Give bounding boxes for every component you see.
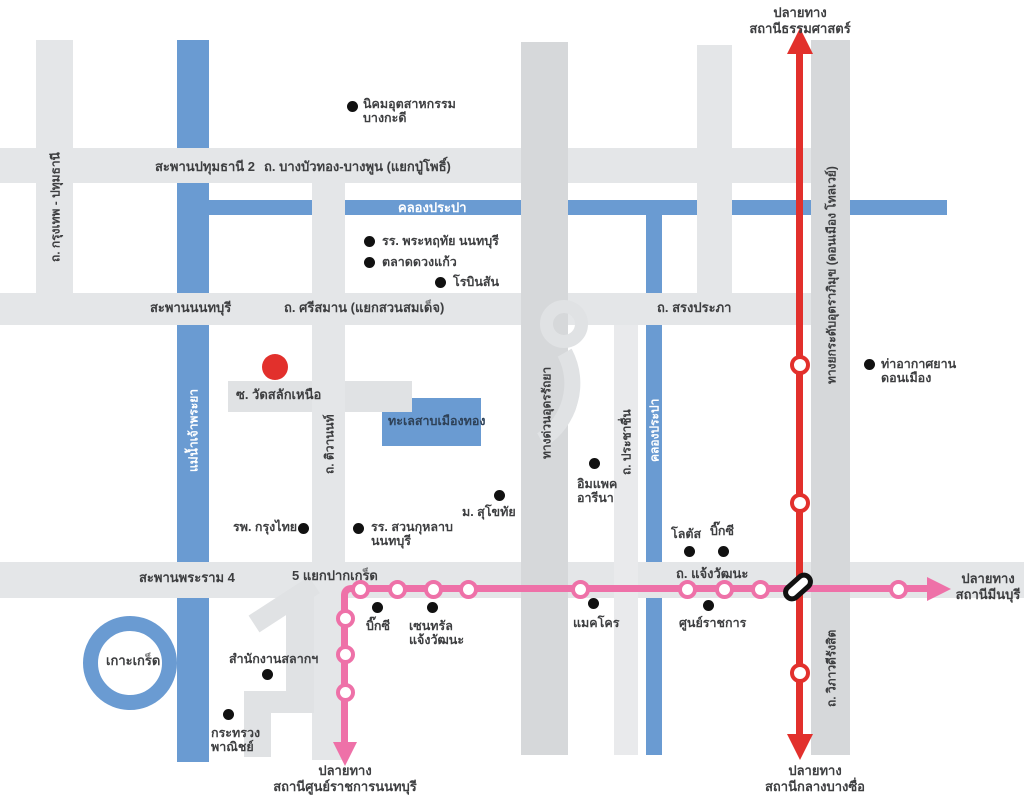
destination-east-line1: ปลายทาง [948,571,1024,587]
poi-label-big-c-chaengwattana: บิ๊กซี [366,619,390,633]
red-line-station-2 [790,493,810,513]
poi-label-line: รพ. กรุงไทย [233,520,297,534]
poi-label-big-c-north: บิ๊กซี [710,524,734,538]
road-label-bangbuathong-bangpun: ถ. บางบัวทอง-บางพูน (แยกปู่โพธิ์) [264,159,451,174]
destination-south-pink: ปลายทาง สถานีศูนย์ราชการนนทบุรี [262,763,428,795]
transit-map: ปลายทาง สถานีธรรมศาสตร์ ปลายทาง สถานีมีน… [0,0,1024,809]
destination-south-red: ปลายทาง สถานีกลางบางซื่อ [755,763,875,795]
poi-dot-don-mueang-airport [864,359,875,370]
pink-line-station-1 [351,580,370,599]
poi-dot-suankularb-school [353,523,364,534]
poi-label-line: ตลาดดวงแก้ว [382,255,457,269]
destination-east: ปลายทาง สถานีมีนบุรี [948,571,1024,603]
poi-label-robinson: โรบินสัน [453,275,499,289]
destination-south-pink-line2: สถานีศูนย์ราชการนนทบุรี [262,779,428,795]
poi-label-line: กระทรวง [211,726,260,740]
road-label-khlong-prapa-vertical: คลองประปา [645,380,663,480]
red-line [796,48,803,738]
pink-line-station-11 [336,645,355,664]
pink-line-station-9 [889,580,908,599]
poi-label-line: เซนทรัล [409,619,464,633]
pink-line-station-10 [336,609,355,628]
pink-line-station-6 [678,580,697,599]
road-north-vertical [697,45,732,325]
poi-dot-robinson [435,277,446,288]
poi-dot-duangkaew-market [364,257,375,268]
poi-dot-phraharuethai-school [364,236,375,247]
poi-label-suankularb-school: รร. สวนกุหลาบนนทบุรี [371,520,453,548]
red-line-station-1 [790,355,810,375]
poi-label-line: ท่าอากาศยาน [881,357,956,371]
poi-label-bangkadi-industrial-estate: นิคมอุตสาหกรรมบางกะดี [363,97,456,125]
poi-label-line: บางกะดี [363,111,456,125]
road-label-saphan-nonthaburi: สะพานนนทบุรี [150,300,231,315]
poi-label-ministry-of-commerce: กระทรวงพาณิชย์ [211,726,260,754]
poi-label-sukhothai-university: ม. สุโขทัย [462,505,516,519]
road-label-chao-phraya-river: แม่น้ำเจ้าพระยา [184,378,202,483]
destination-south-red-line1: ปลายทาง [755,763,875,779]
poi-label-makro: แมคโคร [573,616,619,630]
poi-label-line: บิ๊กซี [710,524,734,538]
poi-dot-bangkadi-industrial-estate [347,101,358,112]
poi-label-line: สำนักงานสลากฯ [229,652,318,666]
poi-dot-makro [588,598,599,609]
poi-dot-big-c-chaengwattana [372,602,383,613]
poi-dot-impact-arena [589,458,600,469]
road-label-udon-ratthaya-expressway: ทางด่วนอุดรรัถยา [537,355,555,470]
destination-north: ปลายทาง สถานีธรรมศาสตร์ [740,5,860,37]
poi-label-line: นนทบุรี [371,534,453,548]
poi-dot-government-complex [703,600,714,611]
poi-label-line: บิ๊กซี [366,619,390,633]
poi-label-duangkaew-market: ตลาดดวงแก้ว [382,255,457,269]
road-label-khlong-prapa-horizontal: คลองประปา [398,200,467,215]
poi-label-lottery-office: สำนักงานสลากฯ [229,652,318,666]
destination-south-pink-line1: ปลายทาง [262,763,428,779]
poi-dot-sukhothai-university [494,490,505,501]
road-label-koh-kret: เกาะเกร็ด [106,653,160,668]
red-location-marker [262,354,288,380]
poi-dot-lottery-office [262,669,273,680]
road-label-krungthep-pathumthani: ถ. กรุงเทพ - ปทุมธานี [46,137,64,277]
road-label-vibhavadi-rangsit: ถ. วิภาวดีรังสิต [822,623,840,713]
poi-dot-ministry-of-commerce [223,709,234,720]
poi-label-impact-arena: อิมแพคอารีนา [577,477,617,505]
poi-label-line: ดอนเมือง [881,371,956,385]
poi-label-line: ศูนย์ราชการ [679,616,746,630]
pink-line-station-7 [715,580,734,599]
road-label-chaengwattana: ถ. แจ้งวัฒนะ [676,566,748,581]
red-line-arrow-south [787,734,813,760]
poi-label-line: นิคมอุตสาหกรรม [363,97,456,111]
poi-label-government-complex: ศูนย์ราชการ [679,616,746,630]
road-label-don-mueang-tollway: ทางยกระดับอุตราภิมุข (ดอนเมือง โทลเวย์) [822,130,840,420]
road-label-srisaman: ถ. ศรีสมาน (แยกสวนสมเด็จ) [284,300,444,315]
destination-south-red-line2: สถานีกลางบางซื่อ [755,779,875,795]
poi-label-krungthai-hospital: รพ. กรุงไทย [233,520,297,534]
poi-label-line: อารีนา [577,491,617,505]
poi-label-line: อิมแพค [577,477,617,491]
poi-label-phraharuethai-school: รร. พระหฤทัย นนทบุรี [382,234,499,248]
poi-dot-lotus [684,546,695,557]
road-label-saphan-rama-4: สะพานพระราม 4 [139,570,235,585]
poi-label-line: ม. สุโขทัย [462,505,516,519]
poi-label-line: รร. สวนกุหลาบ [371,520,453,534]
pink-line-station-2 [388,580,407,599]
pink-line-station-5 [571,580,590,599]
road-label-songprapha: ถ. สรงประภา [657,300,731,315]
expressway-ramp-loop [540,300,588,348]
destination-north-line1: ปลายทาง [740,5,860,21]
pink-line-station-12 [336,683,355,702]
destination-north-line2: สถานีธรรมศาสตร์ [740,21,860,37]
poi-label-line: โรบินสัน [453,275,499,289]
poi-dot-big-c-north [718,546,729,557]
pink-line-station-3 [424,580,443,599]
poi-label-line: พาณิชย์ [211,740,260,754]
poi-label-line: แจ้งวัฒนะ [409,633,464,647]
poi-label-lotus: โลตัส [671,527,701,541]
poi-label-line: รร. พระหฤทัย นนทบุรี [382,234,499,248]
poi-label-line: โลตัส [671,527,701,541]
red-line-station-3 [790,663,810,683]
poi-dot-central-chaengwattana [427,602,438,613]
pink-line-station-4 [459,580,478,599]
road-label-prachachuen: ถ. ประชาชื่น [617,405,635,480]
road-label-tiwanon: ถ. ติวานนท์ [320,407,338,482]
destination-east-line2: สถานีมีนบุรี [948,587,1024,603]
road-label-saphan-pathumthani-2: สะพานปทุมธานี 2 [155,159,255,174]
poi-label-central-chaengwattana: เซนทรัลแจ้งวัฒนะ [409,619,464,647]
road-label-wat-salak-nuea: ซ. วัดสลักเหนือ [236,387,321,402]
poi-dot-krungthai-hospital [298,523,309,534]
poi-label-line: แมคโคร [573,616,619,630]
pink-line-station-8 [751,580,770,599]
road-label-mueang-thong-lake: ทะเลสาบเมืองทอง [388,414,485,429]
poi-label-don-mueang-airport: ท่าอากาศยานดอนเมือง [881,357,956,385]
